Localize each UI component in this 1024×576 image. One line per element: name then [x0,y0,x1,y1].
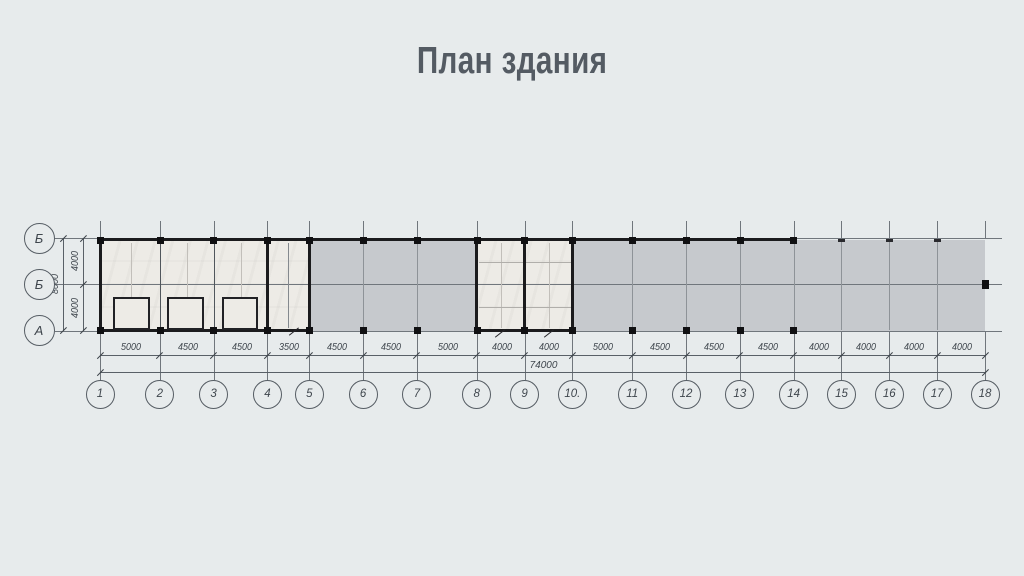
axis-marker-bottom-6: 6 [349,380,378,409]
wall-mid-block-divider [523,240,525,332]
column-marker-top [474,237,481,244]
column-marker-bottom [629,327,636,334]
wall-mid-block-right [571,240,574,332]
dimension-label: 4500 [241,343,243,353]
axis-marker-left-3: А [24,315,55,346]
drawing-canvas: План здания 5000450045003500450045005000… [0,0,1024,576]
wall-axis5 [308,240,311,332]
grid-line-stub-top [214,221,215,238]
axis-marker-bottom-14: 14 [779,380,808,409]
axis-marker-bottom-4: 4 [253,380,282,409]
left-dim-label-top: 4000 [71,243,81,279]
vestibule [167,297,204,330]
column-marker-top [629,237,636,244]
left-dim-label-bottom: 4000 [71,290,81,326]
axis-marker-bottom-16: 16 [875,380,904,409]
wall-left [99,238,102,333]
grid-line-stub-top [363,221,364,238]
column-marker-bottom [737,327,744,334]
column-marker-top [97,237,104,244]
column-marker-bottom [414,327,421,334]
grid-line-col [632,240,633,330]
column-marker-bottom [360,327,367,334]
column-marker-bottom [683,327,690,334]
grid-line-stub-top [267,221,268,238]
dimension-line-left-total [63,238,64,331]
grid-line-stub-top [632,221,633,238]
column-marker-top [264,237,271,244]
vestibule [113,297,150,330]
dimension-line-bays [100,355,985,356]
column-tick-top [934,239,941,241]
dimension-label: 4000 [961,343,963,353]
axis-marker-bottom-18: 18 [971,380,1000,409]
grid-line-stub-top [477,221,478,238]
column-marker-bottom [264,327,271,334]
axis-marker-bottom-12: 12 [672,380,701,409]
axis-marker-bottom-5: 5 [295,380,324,409]
column-marker-top [360,237,367,244]
dimension-label: 4000 [818,343,820,353]
grid-line-col [740,240,741,330]
dimension-label: 4500 [390,343,392,353]
axis-marker-bottom-17: 17 [923,380,952,409]
vestibule [222,297,259,330]
grid-line-stub-top [417,221,418,238]
dimension-label: 4500 [713,343,715,353]
column-marker-top [210,237,217,244]
dimension-label: 3500 [288,343,290,353]
grid-line-stub-top [160,221,161,238]
grid-line-col [363,240,364,330]
texture-line [549,243,550,328]
axis-marker-bottom-8: 8 [462,380,491,409]
grid-line-col [686,240,687,330]
grid-line-stub-top [100,221,101,238]
column-marker-top [569,237,576,244]
wall-top [99,238,795,242]
grid-line-stub-top [686,221,687,238]
dimension-label: 4000 [549,343,551,353]
texture-line [501,243,502,328]
grid-line-stub-top [937,221,938,238]
grid-line-col [794,240,795,330]
column-tick-top [886,239,893,241]
axis-marker-bottom-1: 1 [86,380,115,409]
dimension-label: 5000 [602,343,604,353]
dimension-label: 5000 [447,343,449,353]
column-marker-bottom [306,327,313,334]
grid-line-stub-top [985,221,986,238]
total-dimension-label: 74000 [543,361,545,371]
column-marker-top [157,237,164,244]
column-marker-bottom [157,327,164,334]
dimension-line-total [100,372,985,373]
grid-line-col [841,240,842,330]
axis-marker-left-2: Б [24,269,55,300]
wall-axis4 [266,240,269,332]
floor-plan: 5000450045003500450045005000400040005000… [0,0,1024,576]
partition-wall [160,242,161,328]
column-marker-top [306,237,313,244]
column-marker-bottom [790,327,797,334]
dimension-label: 4000 [865,343,867,353]
column-tick-top [838,239,845,241]
partition-wall [214,242,215,328]
grid-line-col [417,240,418,330]
column-marker-top [790,237,797,244]
column-marker-bottom [521,327,528,334]
axis-marker-bottom-15: 15 [827,380,856,409]
axis-marker-bottom-3: 3 [199,380,228,409]
open-floor-area [309,240,985,331]
column-marker-top [414,237,421,244]
dimension-label: 4000 [913,343,915,353]
axis-marker-bottom-13: 13 [725,380,754,409]
dimension-label: 4500 [659,343,661,353]
grid-line-row [55,284,1002,285]
column-marker-bottom [97,327,104,334]
texture-line [288,243,289,328]
wall-mid-block-left [475,240,478,332]
column-marker-top [521,237,528,244]
column-marker-bottom [210,327,217,334]
axis-marker-bottom-9: 9 [510,380,539,409]
grid-line-col [937,240,938,330]
column-marker-top [737,237,744,244]
axis-marker-bottom-7: 7 [402,380,431,409]
dimension-label: 4500 [767,343,769,353]
axis-marker-bottom-2: 2 [145,380,174,409]
grid-line-col [889,240,890,330]
grid-line-stub-top [889,221,890,238]
axis-marker-bottom-10: 10. [558,380,587,409]
column-marker-right-mid [982,280,989,289]
column-marker-bottom [569,327,576,334]
grid-line-stub-top [525,221,526,238]
column-marker-top [683,237,690,244]
dimension-label: 4000 [501,343,503,353]
grid-line-stub-top [841,221,842,238]
column-marker-bottom [474,327,481,334]
grid-line-stub-top [309,221,310,238]
grid-line-stub-top [740,221,741,238]
axis-marker-left-1: Б [24,223,55,254]
dimension-label: 5000 [130,343,132,353]
grid-line-stub-top [794,221,795,238]
dimension-label: 4500 [336,343,338,353]
dimension-label: 4500 [187,343,189,353]
grid-line-stub-top [572,221,573,238]
axis-marker-bottom-11: 11 [618,380,647,409]
